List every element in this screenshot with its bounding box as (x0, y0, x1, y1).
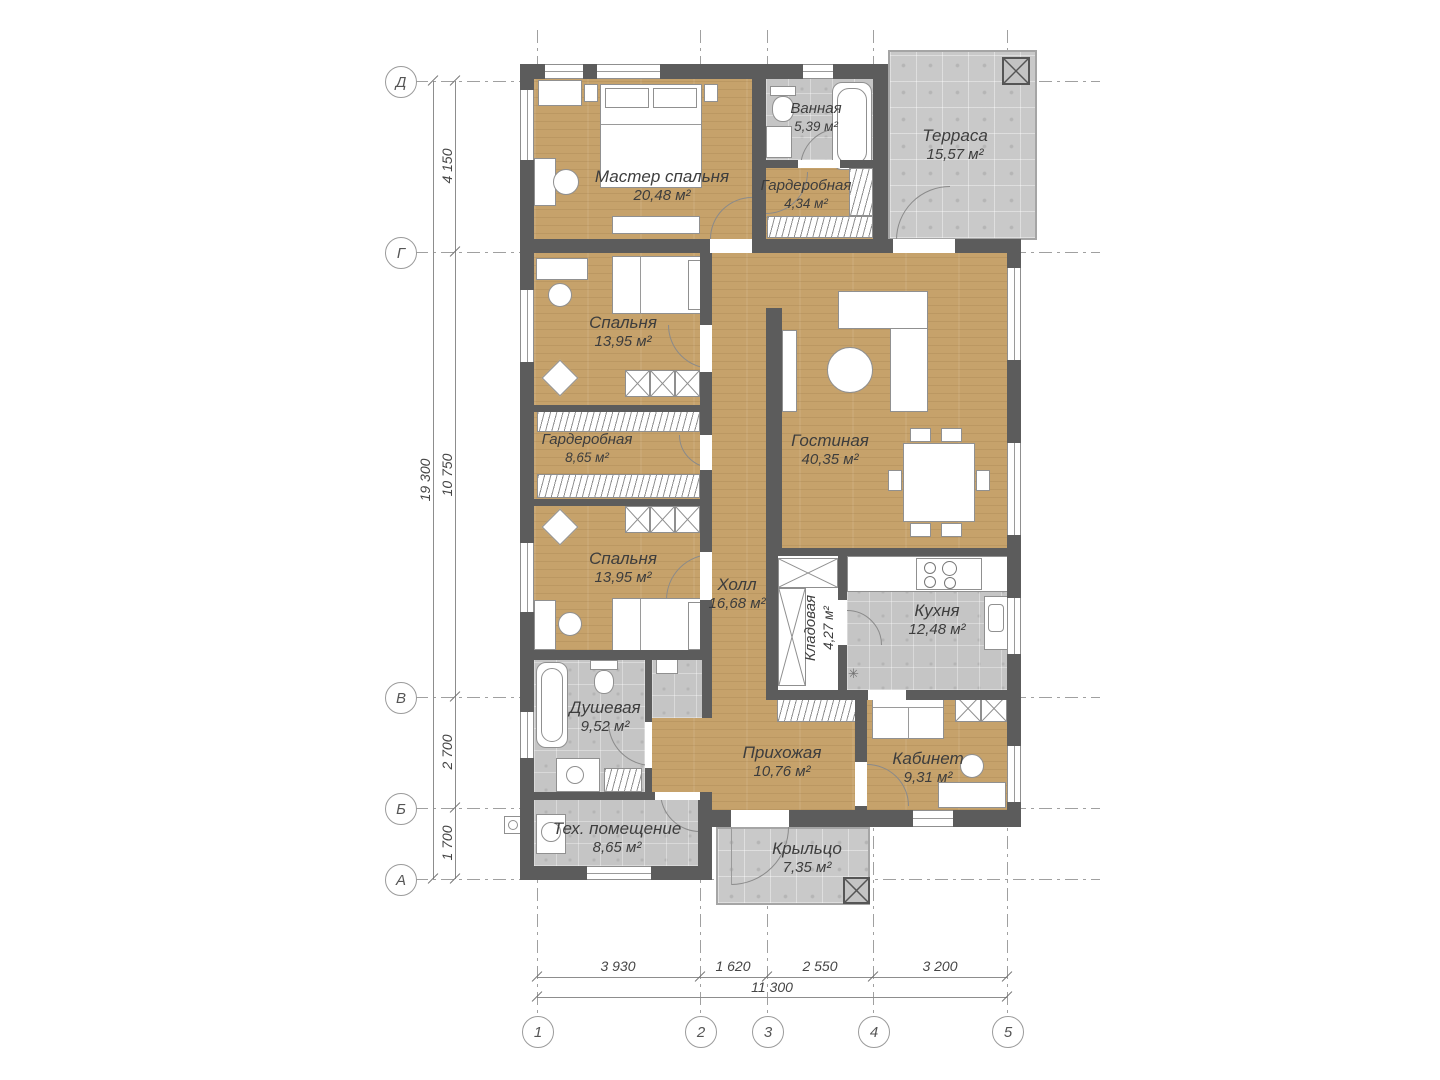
window (520, 90, 534, 160)
wall-right-upper (873, 64, 888, 253)
wardrobe-unit (650, 370, 675, 397)
room-label-master-bedroom: Мастер спальня20,48 м² (595, 166, 729, 206)
room-label-wardrobe-big: Гардеробная8,65 м² (542, 431, 633, 467)
room-label-kitchen: Кухня12,48 м² (909, 600, 966, 640)
sofa-cushion-line (908, 708, 909, 738)
dining-chair (910, 428, 931, 442)
shower-tray (604, 768, 642, 792)
door-opening-wardrobe (700, 435, 712, 470)
blanket-line (640, 599, 641, 653)
door-opening-entrance (731, 810, 789, 827)
dim-line-left-segments (455, 81, 456, 879)
axis-row-d: Д (385, 66, 417, 98)
dining-chair (910, 523, 931, 537)
column-symbol (1002, 57, 1030, 85)
wall-bedroom2-bottom (534, 650, 712, 660)
dining-chair (941, 523, 962, 537)
dim-text: 1 700 (439, 798, 455, 888)
room-label-bedroom-2: Спальня13,95 м² (589, 548, 657, 588)
pillow (605, 88, 649, 108)
room-label-bathroom: Ванная5,39 м² (790, 100, 841, 136)
master-wardrobe (538, 80, 582, 106)
axis-col-4: 4 (858, 1016, 890, 1048)
sofa-top (838, 291, 928, 329)
toilet-tank (770, 86, 796, 96)
floor-plan: ✳ Мастер спальня20,48 м² Ванная5,39 м² Т… (0, 0, 1440, 1080)
burner (944, 577, 956, 589)
dim-text: 3 200 (895, 958, 985, 974)
axis-row-v: В (385, 682, 417, 714)
closet-rack (537, 410, 700, 432)
axis-col-1: 1 (522, 1016, 554, 1048)
room-label-porch: Крыльцо7,35 м² (772, 838, 842, 878)
door-opening-terrace (893, 239, 955, 253)
washbasin (766, 126, 792, 158)
window (803, 64, 833, 79)
wall-lobby-right (702, 650, 712, 718)
dim-text: 19 300 (417, 435, 433, 525)
room-label-living-room: Гостиная40,35 м² (791, 430, 869, 470)
door-opening-tech (655, 792, 700, 800)
dim-line-left-total (433, 81, 434, 879)
wardrobe-unit (625, 506, 650, 533)
dim-text: 1 620 (688, 958, 778, 974)
window (1007, 598, 1021, 654)
wardrobe-unit (625, 370, 650, 397)
dining-chair (976, 470, 990, 491)
dim-line-bottom-total (537, 997, 1007, 998)
dim-text: 10 750 (439, 430, 455, 520)
blanket-line (601, 124, 701, 125)
window (1007, 746, 1021, 802)
window (520, 290, 534, 362)
utility-valve (508, 820, 518, 830)
dim-text: 3 930 (573, 958, 663, 974)
burner (924, 562, 936, 574)
door-opening-office (855, 762, 867, 806)
wall-wardrobe-top (534, 405, 712, 412)
chair (548, 283, 572, 307)
burner (924, 576, 936, 588)
closet-rack (849, 168, 873, 216)
axis-row-b: Б (385, 793, 417, 825)
axis-col-5: 5 (992, 1016, 1024, 1048)
bathtub-inner (541, 668, 563, 742)
storage-unit (778, 558, 838, 588)
window (1007, 443, 1021, 535)
door-opening-pantry (838, 600, 847, 645)
nightstand (704, 84, 718, 102)
desk (534, 600, 556, 650)
wardrobe-unit (675, 370, 700, 397)
dim-text: 4 150 (439, 121, 455, 211)
blanket-line (640, 257, 641, 313)
kitchen-marker-symbol: ✳ (848, 666, 859, 682)
window (520, 712, 534, 758)
dining-chair (941, 428, 962, 442)
axis-row-g: Г (385, 237, 417, 269)
window (913, 810, 953, 827)
tv (782, 330, 797, 412)
dim-text: 11 300 (727, 979, 817, 995)
coffee-table (827, 347, 873, 393)
dim-text: 2 550 (775, 958, 865, 974)
room-label-tech: Тех. помещение8,65 м² (553, 818, 682, 858)
window (587, 866, 651, 880)
sink-bowl (988, 604, 1004, 632)
wall-tech-right (698, 792, 712, 880)
room-label-pantry: Кладовая4,27 м² (802, 595, 838, 661)
chair (558, 612, 582, 636)
burner (942, 561, 957, 576)
window (1007, 268, 1021, 360)
pillow (653, 88, 697, 108)
wall-living-bottom (766, 548, 1008, 556)
wardrobe-unit (650, 506, 675, 533)
axis-row-a: А (385, 864, 417, 896)
door-opening-bedroom1 (700, 325, 712, 372)
room-label-shower: Душевая9,52 м² (569, 697, 640, 737)
room-label-bedroom-1: Спальня13,95 м² (589, 312, 657, 352)
closet-rack (537, 474, 700, 498)
door-leaf (731, 827, 732, 885)
axis-col-3: 3 (752, 1016, 784, 1048)
desk (536, 258, 588, 280)
door-opening-shower (645, 722, 652, 768)
room-label-hall: Холл16,68 м² (709, 574, 766, 614)
axis-col-2: 2 (685, 1016, 717, 1048)
window (597, 64, 660, 79)
wall-tv-partition (766, 308, 782, 553)
dining-chair (888, 470, 902, 491)
nightstand (584, 84, 598, 102)
dining-table (903, 443, 975, 522)
toilet-tank (590, 660, 618, 670)
room-label-wardrobe-small: Гардеробная4,34 м² (761, 177, 852, 213)
dim-text: 2 700 (439, 707, 455, 797)
passage-entry-kitchen (868, 690, 906, 700)
room-label-entry: Прихожая10,76 м² (743, 742, 822, 782)
wall-hall-pantry (766, 548, 778, 700)
door-opening-master (710, 239, 752, 253)
room-label-terrace: Терраса15,57 м² (922, 125, 988, 165)
vanity-sink (566, 766, 584, 784)
door-opening-bath (798, 160, 840, 168)
dresser (612, 216, 700, 234)
window (545, 64, 583, 79)
window (520, 543, 534, 612)
column-symbol (843, 877, 870, 904)
sofa-side (890, 328, 928, 412)
wardrobe-unit (675, 506, 700, 533)
toilet-bowl (594, 670, 614, 694)
chair (553, 169, 579, 195)
closet-rack (767, 216, 873, 238)
dim-line-bottom-segments (537, 977, 1007, 978)
room-label-office: Кабинет9,31 м² (892, 748, 963, 788)
wall-wardrobe-bottom (534, 499, 712, 506)
